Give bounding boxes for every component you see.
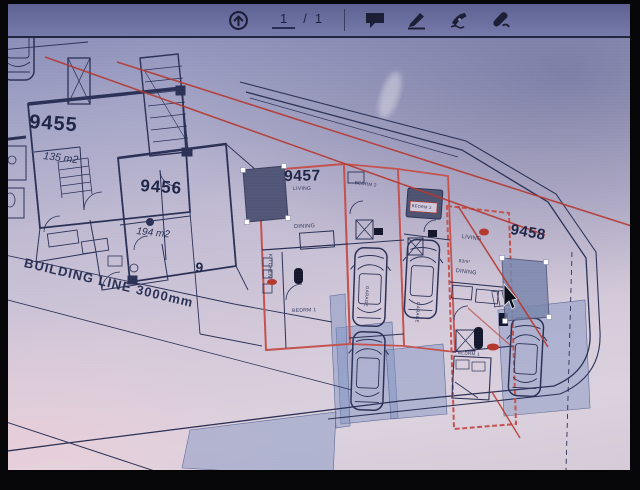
photo-of-screen: 1 / 1 bbox=[0, 0, 640, 490]
scroll-to-top-button[interactable] bbox=[226, 8, 250, 32]
fountain-pen-icon bbox=[448, 10, 471, 30]
screen-glare bbox=[374, 69, 406, 120]
pdf-page[interactable]: 9455 135 m2 9456 194 m2 9457 9458 9 BUIL… bbox=[8, 38, 630, 470]
room-label-garage-b: GARAGE bbox=[414, 302, 420, 323]
page-current[interactable]: 1 bbox=[272, 11, 295, 29]
up-arrow-circle-icon bbox=[228, 10, 249, 31]
eraser-tool-button[interactable] bbox=[489, 8, 513, 32]
selected-annotation-2[interactable] bbox=[500, 256, 552, 324]
plan-geometry bbox=[8, 38, 630, 470]
eraser-icon bbox=[490, 10, 513, 30]
floor-plan-drawing: 9455 135 m2 9456 194 m2 9457 9458 9 BUIL… bbox=[8, 38, 630, 470]
toolbar-divider bbox=[344, 9, 345, 31]
pdf-toolbar: 1 / 1 bbox=[8, 4, 630, 38]
room-label-bedrm1-9457: BEDRM 1 bbox=[292, 308, 316, 314]
page-separator: / bbox=[303, 11, 307, 26]
room-label-dining-9457: DINING bbox=[294, 224, 315, 230]
comment-tool-button[interactable] bbox=[363, 8, 387, 32]
page-total: 1 bbox=[315, 11, 322, 26]
room-label-living-9457: LIVING bbox=[293, 187, 311, 192]
comment-icon bbox=[364, 10, 386, 30]
pen-icon bbox=[406, 10, 428, 30]
selected-annotation-1[interactable] bbox=[241, 164, 291, 225]
erf-number: 9 bbox=[195, 260, 204, 275]
room-label-kitchen-9457: KITCHEN bbox=[266, 254, 272, 278]
room-label-garage-a: GARAGE bbox=[363, 286, 369, 307]
pen-tool-button[interactable] bbox=[405, 8, 429, 32]
signature-tool-button[interactable] bbox=[447, 8, 471, 32]
page-indicator[interactable]: 1 / 1 bbox=[272, 11, 322, 29]
unit-number-9457: 9457 bbox=[284, 168, 321, 184]
unit-number-9455: 9455 bbox=[29, 112, 79, 135]
unit-number-9456: 9456 bbox=[140, 177, 183, 197]
